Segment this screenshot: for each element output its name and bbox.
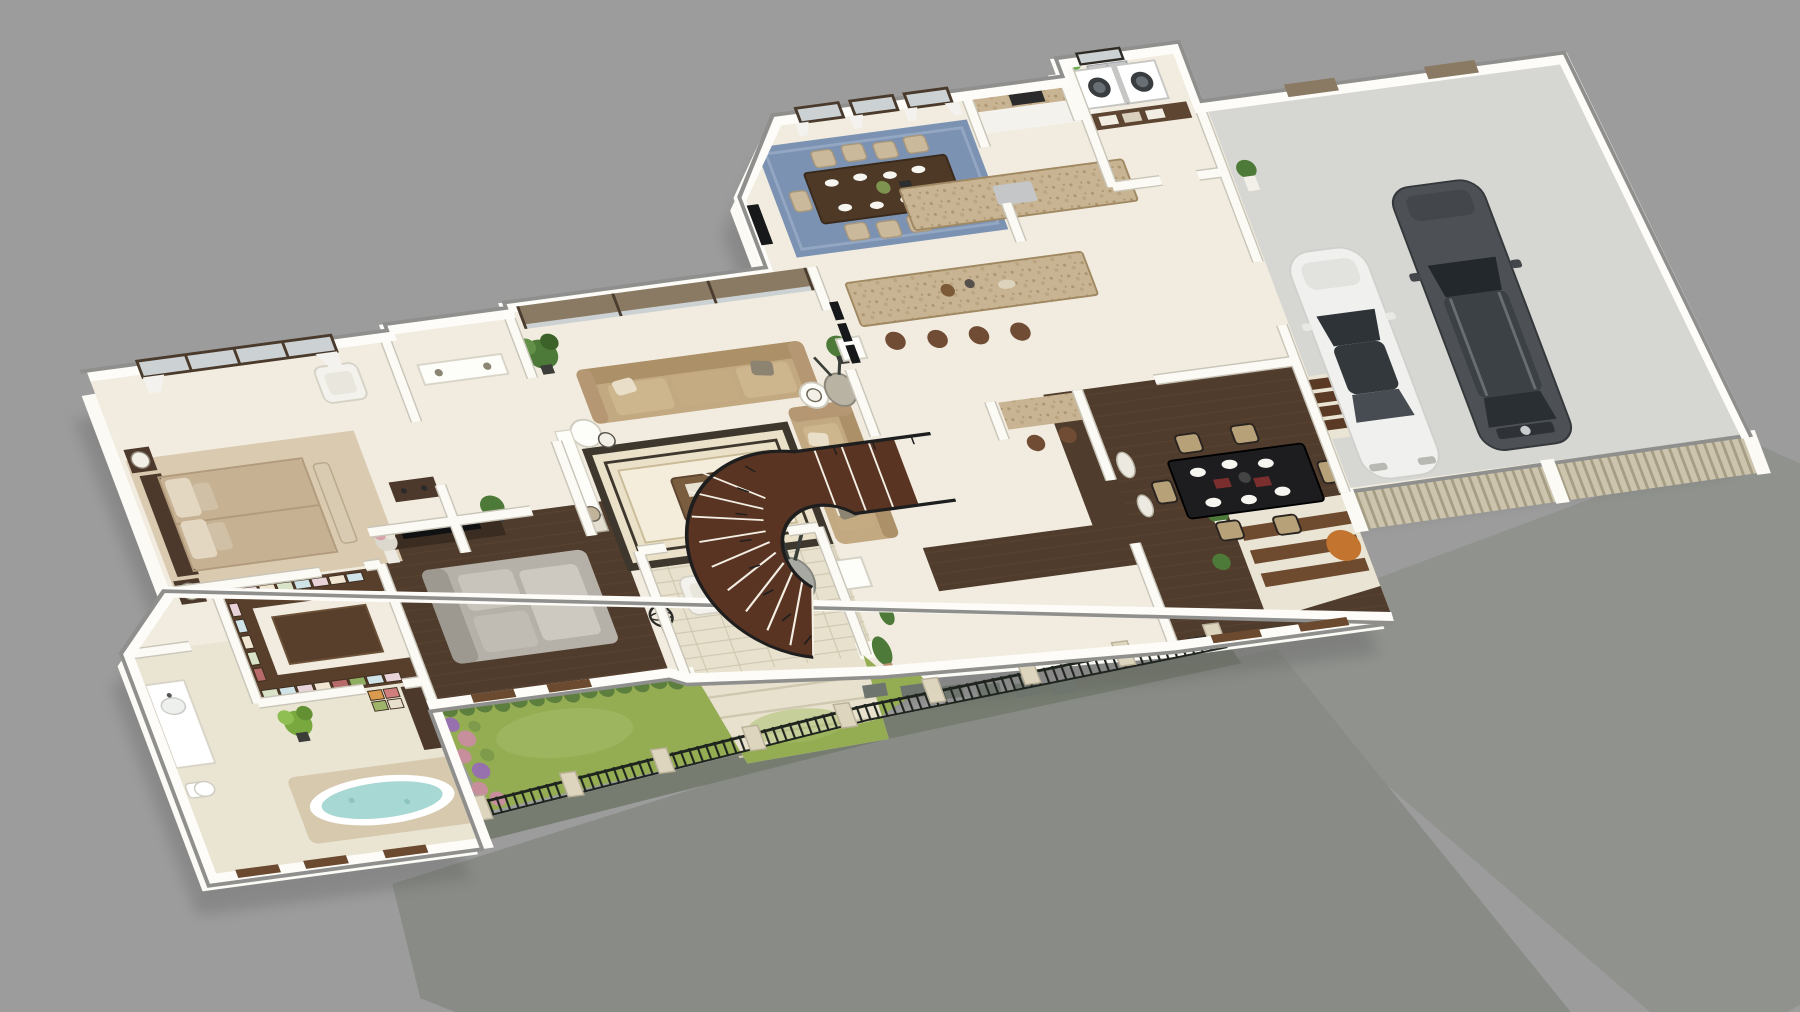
- sofa-pillow: [807, 432, 829, 447]
- floor-plan-svg: [0, 0, 1800, 1012]
- floor-plan-render: [0, 0, 1800, 1012]
- sofa-pillow: [750, 361, 775, 376]
